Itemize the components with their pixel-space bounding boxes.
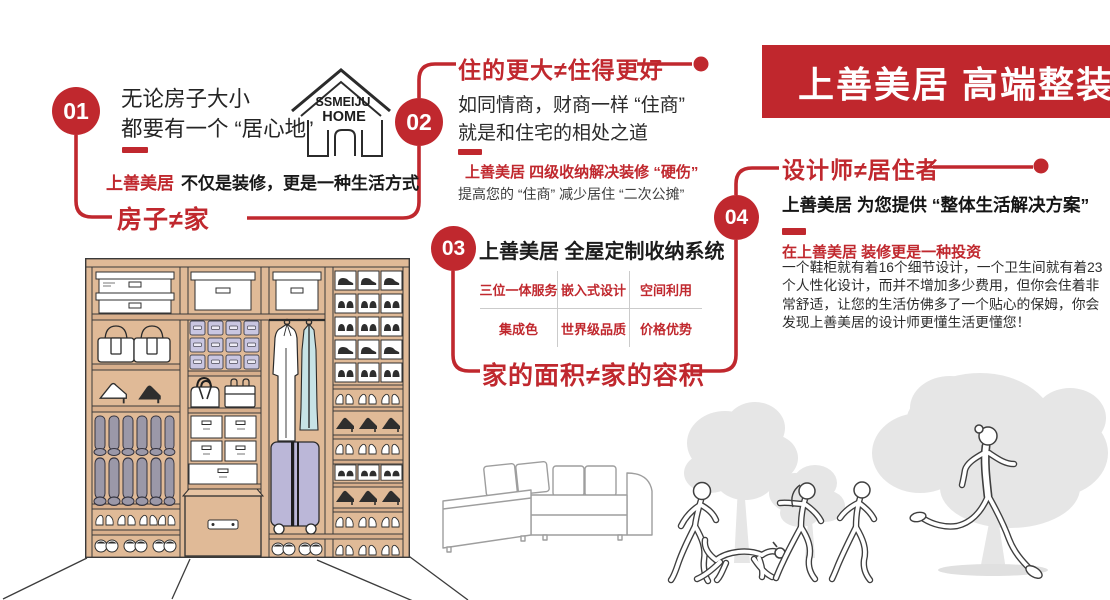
step-2-heading: 住的更大≠住得更好 bbox=[458, 51, 664, 85]
tree-silhouettes bbox=[684, 373, 1108, 576]
connector-step3 bbox=[453, 271, 480, 371]
connector-step4-heading bbox=[736, 168, 779, 195]
step-2-dash bbox=[458, 149, 482, 155]
step-4-badge: 04 bbox=[714, 195, 759, 240]
feature-cell: 价格优势 bbox=[630, 309, 702, 347]
step-1-slogan: 上善美居不仅是装修，更是一种生活方式 bbox=[106, 169, 419, 194]
step-2-subtitle-red: 上善美居 四级收纳解决装修 “硬伤” bbox=[465, 161, 698, 182]
step-1-intro-line1: 无论房子大小 bbox=[121, 84, 313, 114]
step-2-body-line1: 如同情商，财商一样 “住商” bbox=[458, 92, 685, 120]
step-1-intro: 无论房子大小 都要有一个 “居心地” bbox=[121, 84, 313, 144]
feature-cell: 世界级品质 bbox=[558, 309, 630, 347]
connector-step2-heading bbox=[419, 64, 456, 98]
feature-cell: 嵌入式设计 bbox=[558, 271, 630, 309]
family-running-scene bbox=[650, 358, 1110, 600]
step-1-dash bbox=[122, 147, 148, 153]
step-3-badge: 03 bbox=[431, 226, 476, 271]
step-1-tagline: 房子≠家 bbox=[117, 200, 210, 236]
step-2-badge: 02 bbox=[395, 98, 443, 146]
brand-name: 上善美居 bbox=[106, 174, 174, 193]
wardrobe-illustration bbox=[85, 258, 410, 558]
brand-banner: 上善美居 高端整装 bbox=[762, 45, 1110, 118]
step-2-subtitle-gray: 提高您的 “住商” 减少居住 “二次公摊” bbox=[458, 184, 684, 204]
logo-text-line1: SSMEIJU bbox=[316, 95, 371, 109]
sofa-illustration bbox=[433, 443, 673, 553]
floor-lines bbox=[3, 554, 468, 600]
connector-end-dot-4 bbox=[1034, 159, 1049, 174]
feature-cell: 空间利用 bbox=[630, 271, 702, 309]
step-4-paragraph: 一个鞋柜就有着16个细节设计，一个卫生间就有着23个人性化设计，而并不增加多少费… bbox=[782, 259, 1110, 333]
banner-title: 上善美居 高端整装 bbox=[762, 56, 1110, 108]
step-1-intro-line2: 都要有一个 “居心地” bbox=[121, 114, 313, 144]
poster-canvas: 上善美居 高端整装 01 02 03 04 无论房子大小 都要有一个 “居心地”… bbox=[0, 0, 1110, 600]
step-3-title: 上善美居 全屋定制收纳系统 bbox=[479, 235, 725, 264]
logo-text-line2: HOME bbox=[322, 109, 366, 125]
step-4-dash bbox=[782, 228, 806, 235]
feature-cell: 三位一体服务 bbox=[480, 271, 558, 309]
step-4-line1: 上善美居 为您提供 “整体生活解决方案” bbox=[782, 192, 1089, 217]
step-2-body-line2: 就是和住宅的相处之道 bbox=[458, 120, 685, 148]
running-boy-figure bbox=[671, 483, 716, 582]
feature-cell: 集成色 bbox=[480, 309, 558, 347]
feature-table: 三位一体服务 嵌入式设计 空间利用 集成色 世界级品质 价格优势 bbox=[480, 271, 702, 347]
step-2-body: 如同情商，财商一样 “住商” 就是和住宅的相处之道 bbox=[458, 92, 685, 148]
step-1-slogan-rest: 不仅是装修，更是一种生活方式 bbox=[181, 174, 419, 193]
step-4-heading: 设计师≠居住者 bbox=[782, 151, 940, 185]
step-1-badge: 01 bbox=[52, 87, 100, 135]
connector-end-dot-2 bbox=[694, 57, 709, 72]
